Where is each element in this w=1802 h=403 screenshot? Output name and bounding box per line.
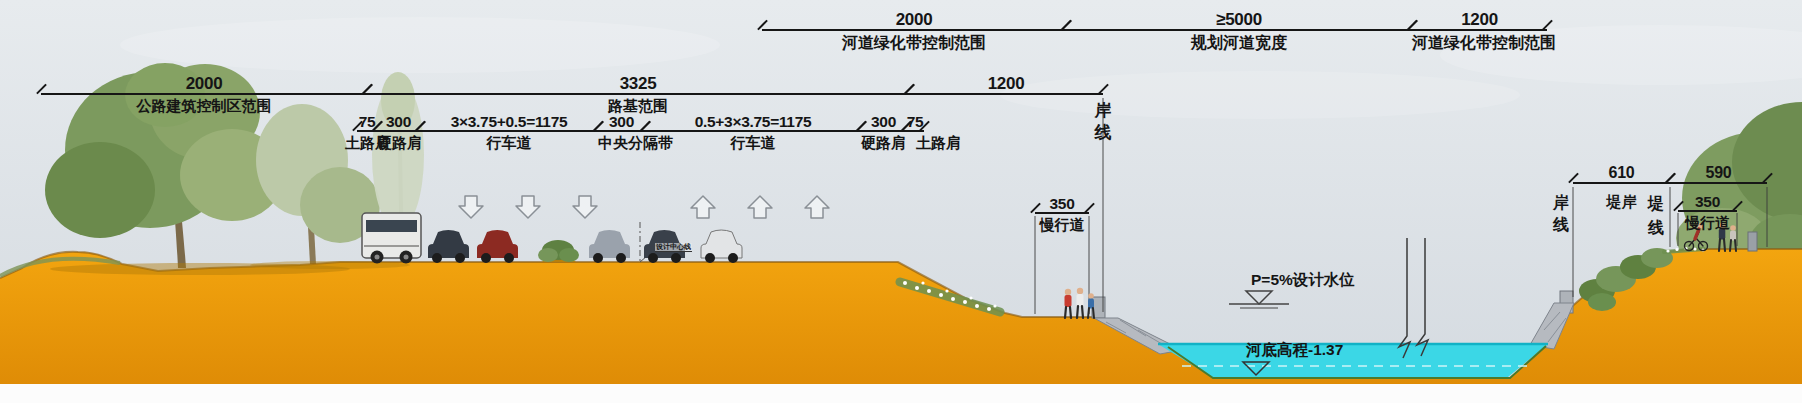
- dim-label: 慢行道: [1035, 217, 1089, 234]
- dim-earth-shoulder-right: 75 土路肩: [906, 130, 924, 132]
- shoreline-label-left: 岸线: [1093, 100, 1113, 144]
- dim-slow-lane-right: 350 慢行道: [1678, 210, 1737, 212]
- dim-value: 350: [1035, 196, 1089, 212]
- design-water-level-label: P=5%设计水位: [1251, 272, 1355, 288]
- dim-value: 350: [1678, 194, 1737, 210]
- dim-value: 300: [861, 114, 906, 130]
- dim-carriageway-left: 3×3.75+0.5=1175 行车道: [420, 130, 598, 132]
- dim-value: 300: [377, 114, 420, 130]
- dim-label: 土路肩: [916, 135, 934, 152]
- dim-value: 2000: [41, 75, 367, 92]
- bus: [362, 213, 421, 264]
- dim-dike-bank-610: 610 堤岸: [1573, 182, 1670, 184]
- dim-label: 路基范围: [367, 98, 909, 115]
- dim-label: 中央分隔带: [598, 135, 645, 152]
- dim-bank-1200: 1200: [909, 93, 1103, 95]
- dim-value: 610: [1573, 165, 1670, 181]
- dim-value: 75: [906, 114, 924, 130]
- dim-value: 3325: [367, 75, 909, 92]
- dim-label: 公路建筑控制区范围: [41, 98, 367, 115]
- dim-value: 590: [1670, 165, 1767, 181]
- dim-value: 1200: [1412, 11, 1547, 28]
- cross-section-drawing: 2000 河道绿化带控制范围 ≥5000 规划河道宽度 1200 河道绿化带控制…: [0, 0, 1802, 403]
- dim-value: ≥5000: [1066, 11, 1412, 28]
- dim-label: 规划河道宽度: [1066, 34, 1412, 52]
- dim-label: 硬路肩: [861, 135, 906, 152]
- cross-section-scene: [0, 0, 1802, 403]
- shoreline-label-right: 岸线: [1551, 192, 1571, 236]
- dim-green-belt-right: 1200 河道绿化带控制范围: [1412, 29, 1547, 31]
- dim-central-median: 300 中央分隔带: [598, 130, 645, 132]
- dim-label: 土路肩: [345, 135, 365, 152]
- design-centerline-label: 设计中心线: [655, 243, 692, 252]
- dim-value: 0.5+3×3.75=1175: [645, 114, 861, 130]
- dim-value: 2000: [762, 11, 1066, 28]
- dim-road-control-zone: 2000 公路建筑控制区范围: [41, 93, 367, 95]
- dim-label: 行车道: [420, 135, 598, 152]
- dim-value: 300: [598, 114, 645, 130]
- dim-hard-shoulder-left: 300 硬路肩: [377, 130, 420, 132]
- dim-label: 河道绿化带控制范围: [1412, 34, 1547, 52]
- dim-label: 慢行道: [1678, 215, 1737, 232]
- dike-line-label: 堤线: [1646, 192, 1666, 240]
- river-water: [1158, 344, 1548, 378]
- dim-label: 河道绿化带控制范围: [762, 34, 1066, 52]
- bollard: [1748, 232, 1757, 251]
- dim-roadbed-extent: 3325 路基范围: [367, 93, 909, 95]
- dim-value: 3×3.75+0.5=1175: [420, 114, 598, 130]
- dim-value: 1200: [909, 75, 1103, 92]
- dim-slow-lane-left: 350 慢行道: [1035, 212, 1089, 214]
- dim-carriageway-right: 0.5+3×3.75=1175 行车道: [645, 130, 861, 132]
- dim-planned-river-width: ≥5000 规划河道宽度: [1066, 29, 1412, 31]
- dim-green-belt-left: 2000 河道绿化带控制范围: [762, 29, 1066, 31]
- river-bottom-elevation-label: 河底高程-1.37: [1246, 342, 1343, 358]
- dim-hard-shoulder-right: 300 硬路肩: [861, 130, 906, 132]
- dim-bank-590: 590: [1670, 182, 1767, 184]
- dim-label: 硬路肩: [377, 135, 420, 152]
- dim-label: 行车道: [645, 135, 861, 152]
